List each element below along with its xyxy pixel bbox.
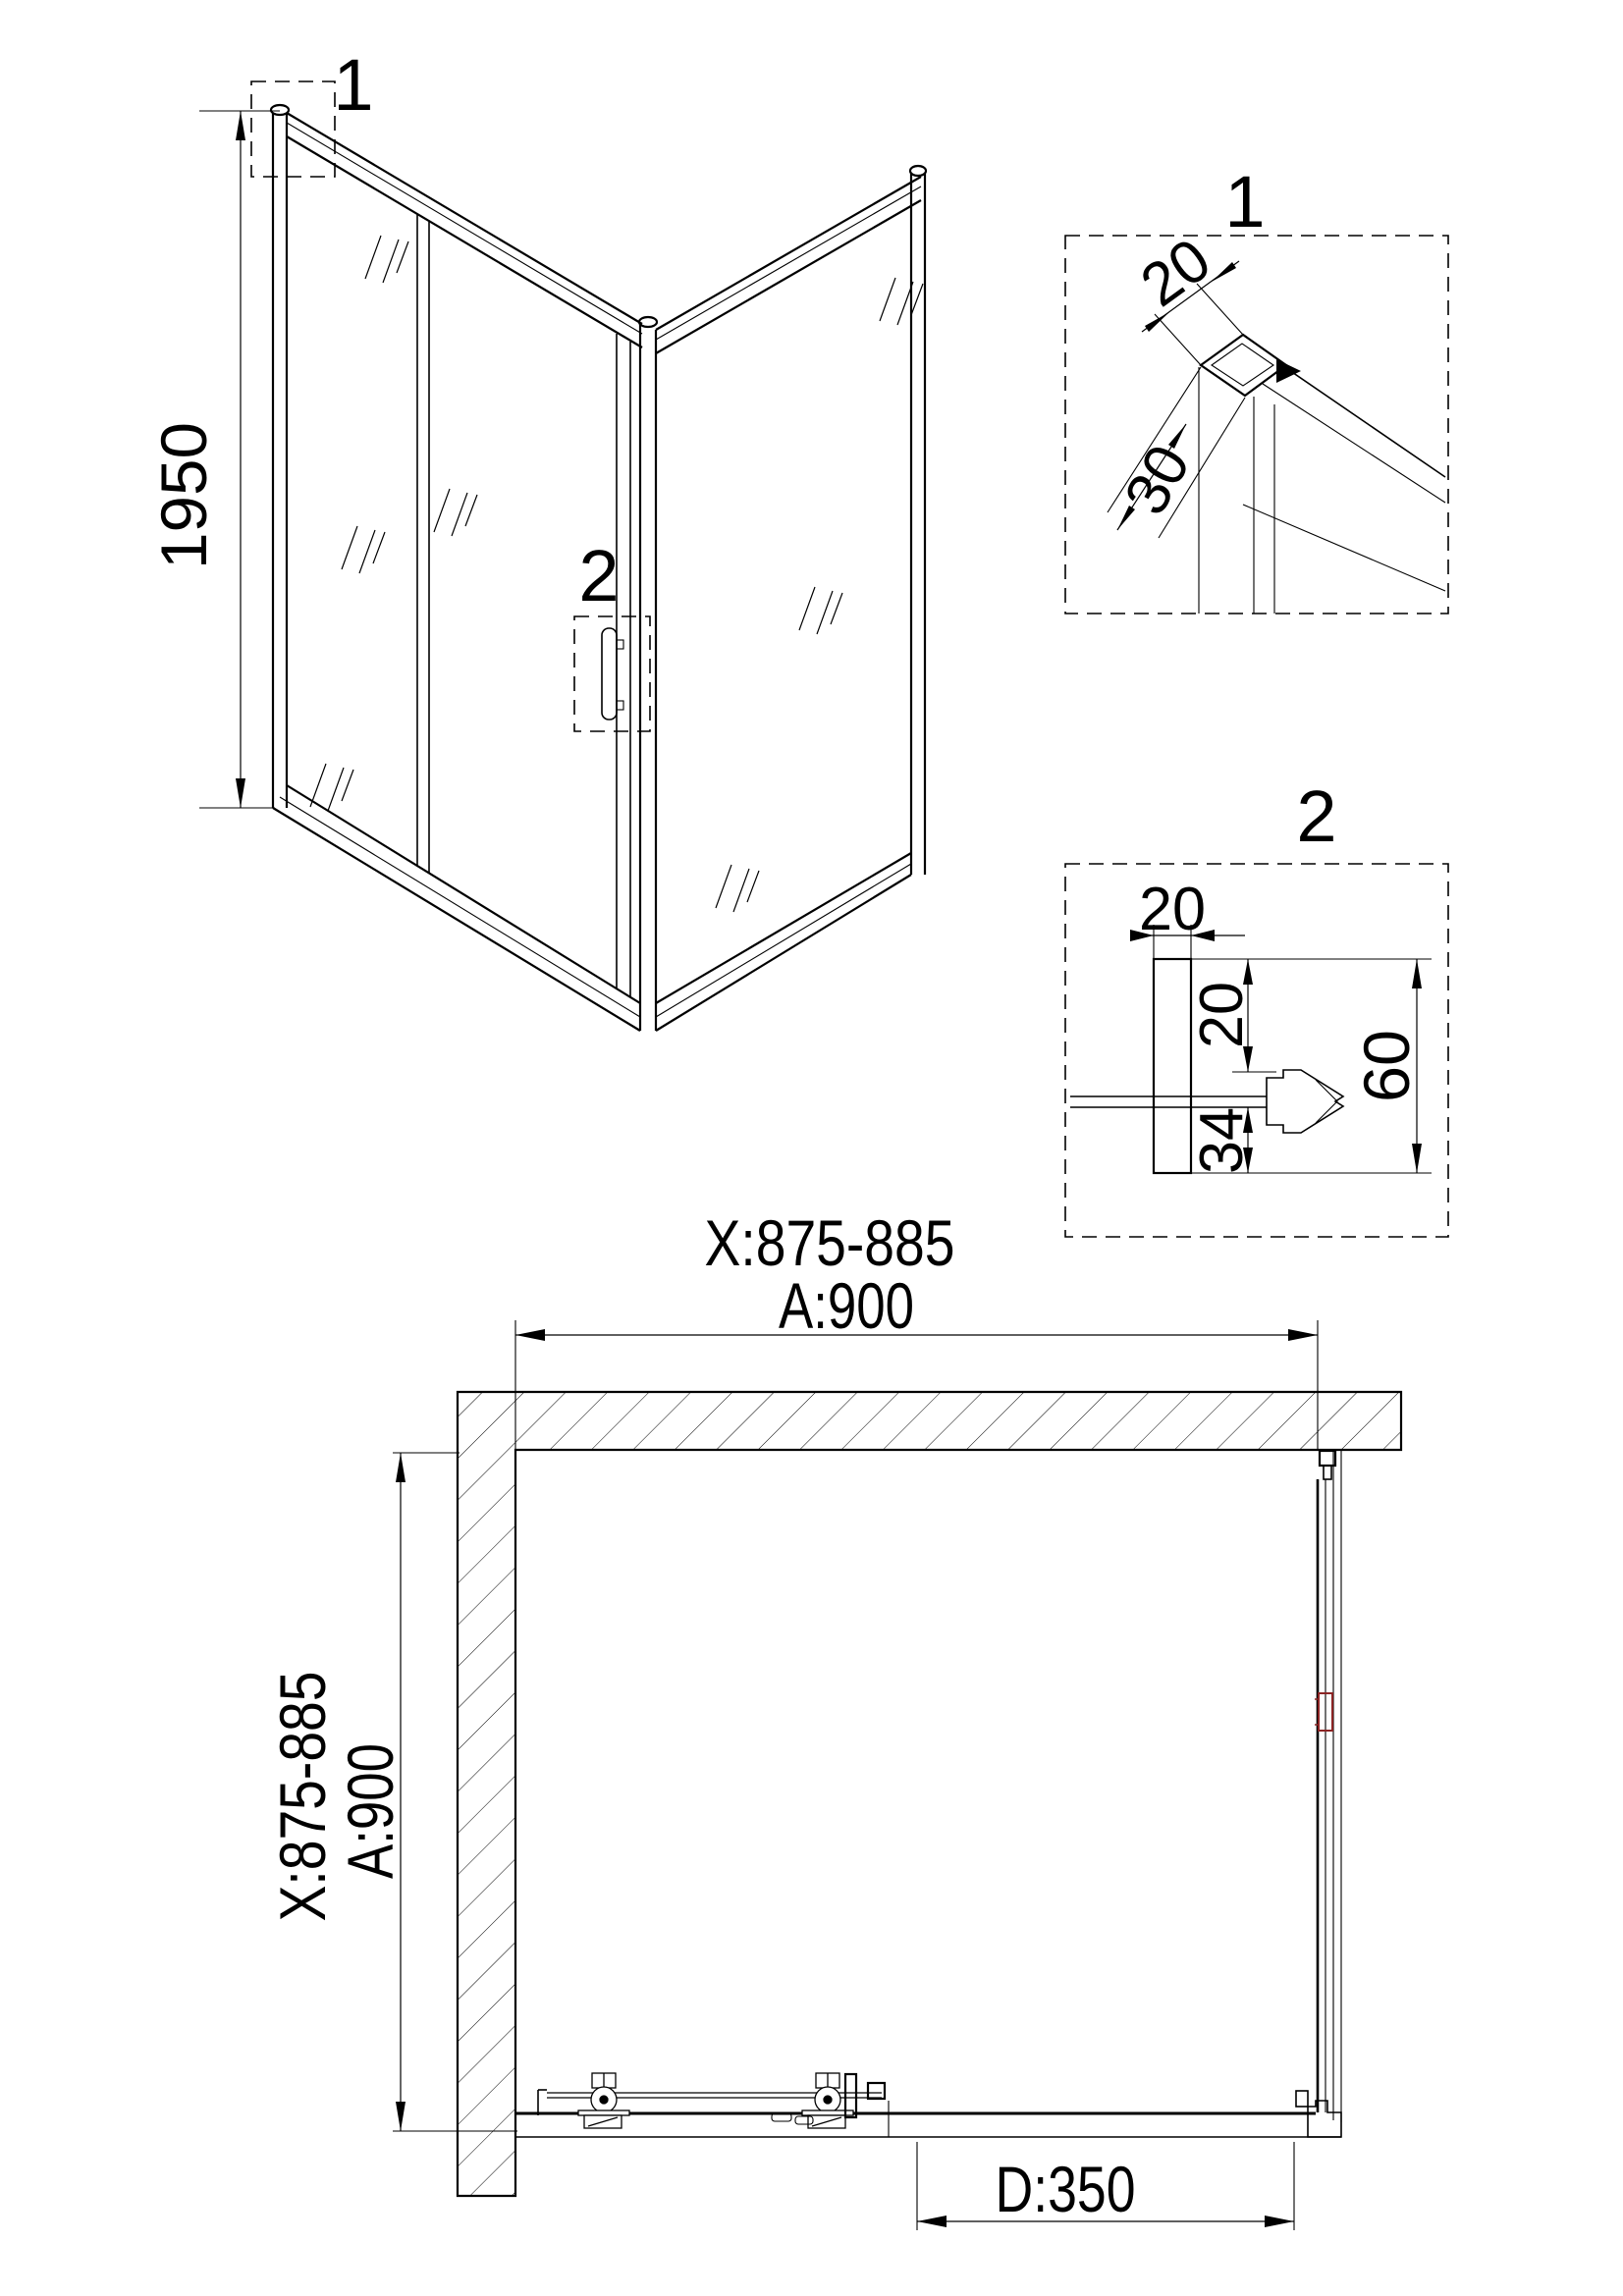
detail-2-label: 2 (1296, 775, 1336, 857)
plan-dim-width-label: A:900 (779, 1269, 914, 1342)
plan-dim-door-label: D:350 (996, 2153, 1136, 2225)
drawing-sheet: 1 2 1950 1 (0, 0, 1623, 2296)
callout-1-label: 1 (333, 44, 373, 126)
plan-dim-width-range-label: X:875-885 (705, 1206, 955, 1279)
plan-dim-depth-label: A:900 (334, 1743, 406, 1879)
detail-2-dim-upper-label: 20 (1188, 982, 1256, 1048)
detail-2-dim-width-label: 20 (1139, 876, 1206, 943)
detail-2-dim-lower-label: 34 (1188, 1107, 1256, 1174)
callout-2-label: 2 (578, 535, 619, 616)
sheet-background (0, 0, 1623, 2296)
detail-1-label: 1 (1224, 161, 1265, 242)
shower-enclosure-technical-drawing: 1 2 1950 1 (0, 0, 1623, 2296)
height-dimension-label: 1950 (147, 422, 220, 569)
detail-2-dim-lower: 34 (1188, 1107, 1256, 1174)
plan-dim-depth-range-label: X:875-885 (266, 1672, 339, 1922)
detail-2-dim-total-label: 60 (1350, 1030, 1423, 1102)
